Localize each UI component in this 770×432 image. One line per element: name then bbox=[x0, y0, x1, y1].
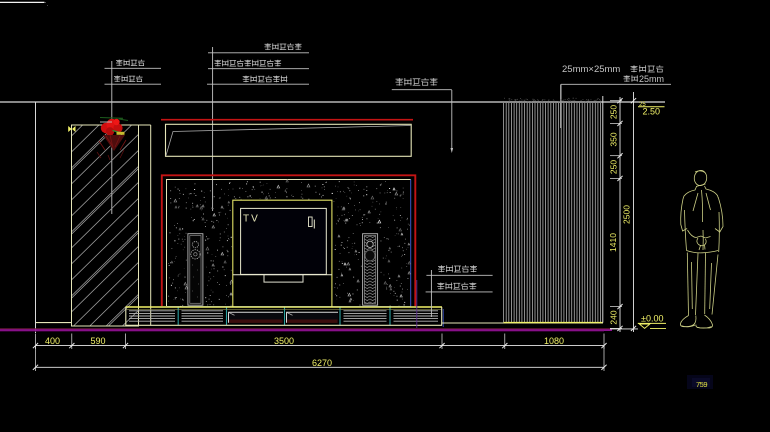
svg-text:2.50: 2.50 bbox=[643, 107, 661, 117]
svg-text:25mm×25mm: 25mm×25mm bbox=[562, 64, 620, 75]
svg-text:590: 590 bbox=[90, 336, 105, 346]
svg-text:400: 400 bbox=[45, 336, 60, 346]
svg-text:1080: 1080 bbox=[544, 336, 564, 346]
svg-text:759: 759 bbox=[696, 380, 707, 389]
svg-text:6270: 6270 bbox=[312, 358, 332, 368]
svg-text:2500: 2500 bbox=[622, 205, 632, 224]
svg-text:250: 250 bbox=[609, 105, 619, 119]
svg-text:240: 240 bbox=[609, 310, 619, 324]
svg-text:±0.00: ±0.00 bbox=[641, 314, 663, 324]
svg-text:TV: TV bbox=[243, 214, 260, 225]
svg-text:25mm: 25mm bbox=[639, 74, 664, 84]
svg-text:1410: 1410 bbox=[608, 233, 618, 252]
svg-text:350: 350 bbox=[609, 132, 619, 146]
svg-text:250: 250 bbox=[609, 160, 619, 174]
svg-text:3500: 3500 bbox=[274, 336, 294, 346]
